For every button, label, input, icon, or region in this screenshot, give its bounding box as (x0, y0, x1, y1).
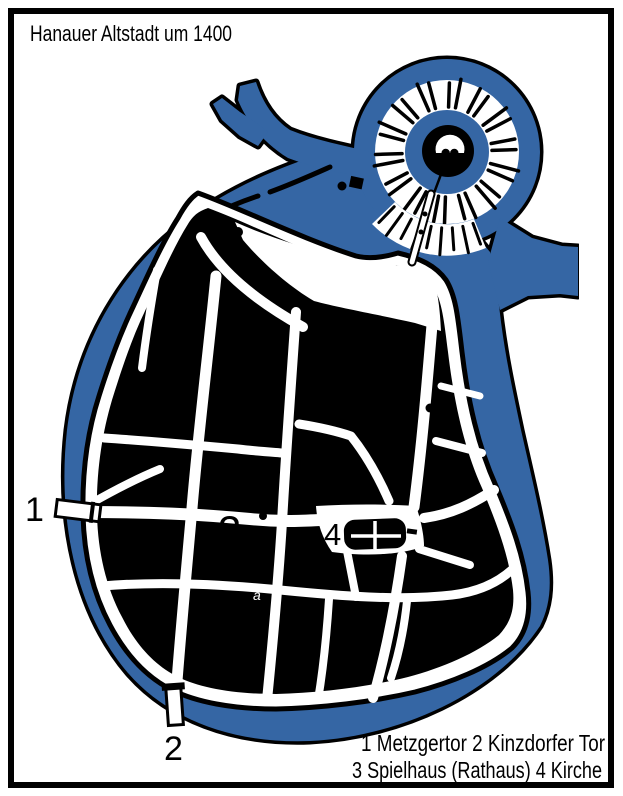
east-channel-open-end (579, 236, 607, 306)
marker-3-label: 3 (218, 507, 241, 554)
castle-tick (444, 197, 445, 226)
annotation-a: a (253, 587, 261, 603)
map-canvas: a 1 2 3 4 Hanauer Altstadt um 1400 1 Met… (0, 0, 623, 796)
town-map-svg: a 1 2 3 4 Hanauer Altstadt um 1400 1 Met… (0, 0, 623, 796)
castle-tick (449, 83, 450, 107)
well-dot (259, 512, 267, 520)
castle-tick (376, 154, 402, 155)
marker-1-label: 1 (25, 491, 44, 529)
well-dot (379, 555, 385, 561)
well-dot (426, 404, 435, 413)
gate-2-bridge (166, 685, 184, 726)
well-dot (233, 227, 243, 237)
gate-1-bar (91, 502, 94, 523)
castle-keep (422, 125, 474, 177)
bridge-dot (419, 230, 424, 235)
castle-tick (452, 228, 454, 250)
map-title: Hanauer Altstadt um 1400 (30, 21, 232, 46)
castle-tick (492, 150, 516, 151)
marker-4-label: 4 (324, 517, 341, 552)
legend: 1 Metzgertor 2 Kinzdorfer Tor 3 Spielhau… (352, 730, 605, 783)
bridge-dot (423, 212, 428, 217)
legend-line-1: 1 Metzgertor 2 Kinzdorfer Tor (361, 730, 605, 756)
legend-line-2: 3 Spielhaus (Rathaus) 4 Kirche (352, 757, 602, 783)
castle-tick (440, 228, 442, 255)
well-dot (205, 264, 213, 272)
junction-islet-dot (338, 182, 347, 191)
marker-2-label: 2 (164, 730, 183, 768)
